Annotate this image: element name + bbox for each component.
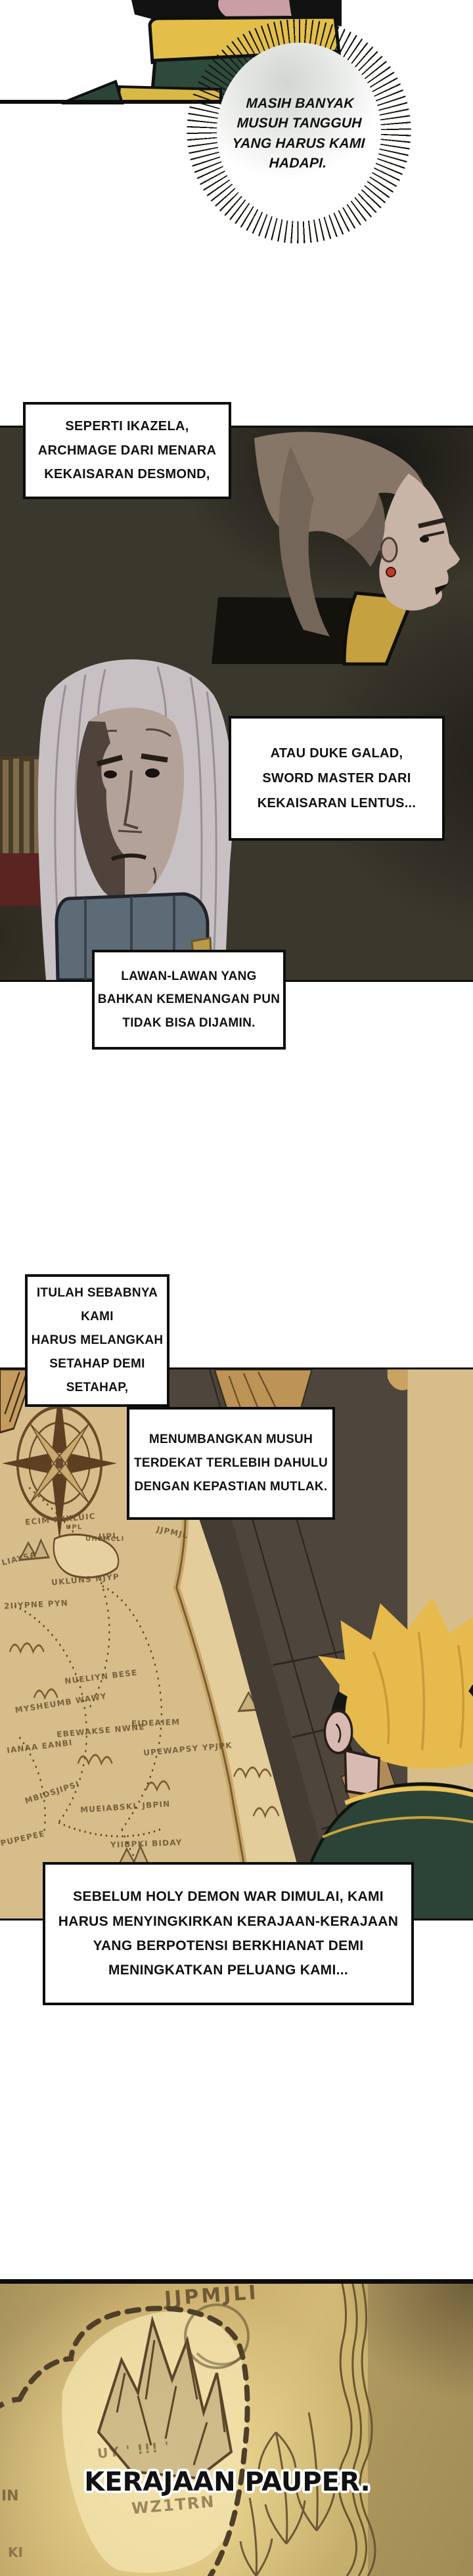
archmage-portrait	[212, 432, 460, 664]
pauper-faint-glyph: KI	[8, 2544, 23, 2560]
pauper-panel-artwork	[0, 2281, 473, 2576]
caption-box-lawan: LAWAN-LAWAN YANG BAHKAN KEMENANGAN PUN T…	[92, 950, 286, 1050]
caption-box-galad: ATAU DUKE GALAD, SWORD MASTER DARI KEKAI…	[229, 716, 445, 841]
speech-bubble-text: MASIH BANYAK MUSUH TANGGUH YANG HARUS KA…	[199, 94, 399, 174]
map-glyph: UHPMCLI	[85, 1536, 125, 1543]
speech-bubble: MASIH BANYAK MUSUH TANGGUH YANG HARUS KA…	[184, 16, 414, 246]
kingdom-name-label: KERAJAAN PAUPER.	[56, 2467, 398, 2497]
map-glyph: EIDEAIEM	[131, 1718, 181, 1729]
dashed-trail	[0, 2399, 20, 2410]
duke-portrait	[38, 659, 233, 980]
ear	[325, 1711, 351, 1753]
pauper-map-panel	[0, 2279, 473, 2576]
outer-parchment	[368, 2281, 473, 2576]
caption-box-sebelum: SEBELUM HOLY DEMON WAR DIMULAI, KAMI HAR…	[43, 1862, 414, 2005]
portrait-panel-artwork	[0, 428, 473, 980]
neck	[345, 1750, 379, 1796]
portrait-panel	[0, 426, 473, 982]
caption-box-ikazela: SEPERTI IKAZELA, ARCHMAGE DARI MENARA KE…	[23, 402, 231, 499]
comic-page: MASIH BANYAK MUSUH TANGGUH YANG HARUS KA…	[0, 0, 473, 2576]
caption-box-menumbangkan: MENUMBANGKAN MUSUH TERDEKAT TERLEBIH DAH…	[127, 1407, 335, 1520]
pauper-faint-glyph: IN	[1, 2488, 19, 2504]
caption-box-itulah: ITULAH SEBABNYA KAMI HARUS MELANGKAH SET…	[25, 1274, 169, 1407]
map-glyph: UPL	[66, 1524, 82, 1531]
